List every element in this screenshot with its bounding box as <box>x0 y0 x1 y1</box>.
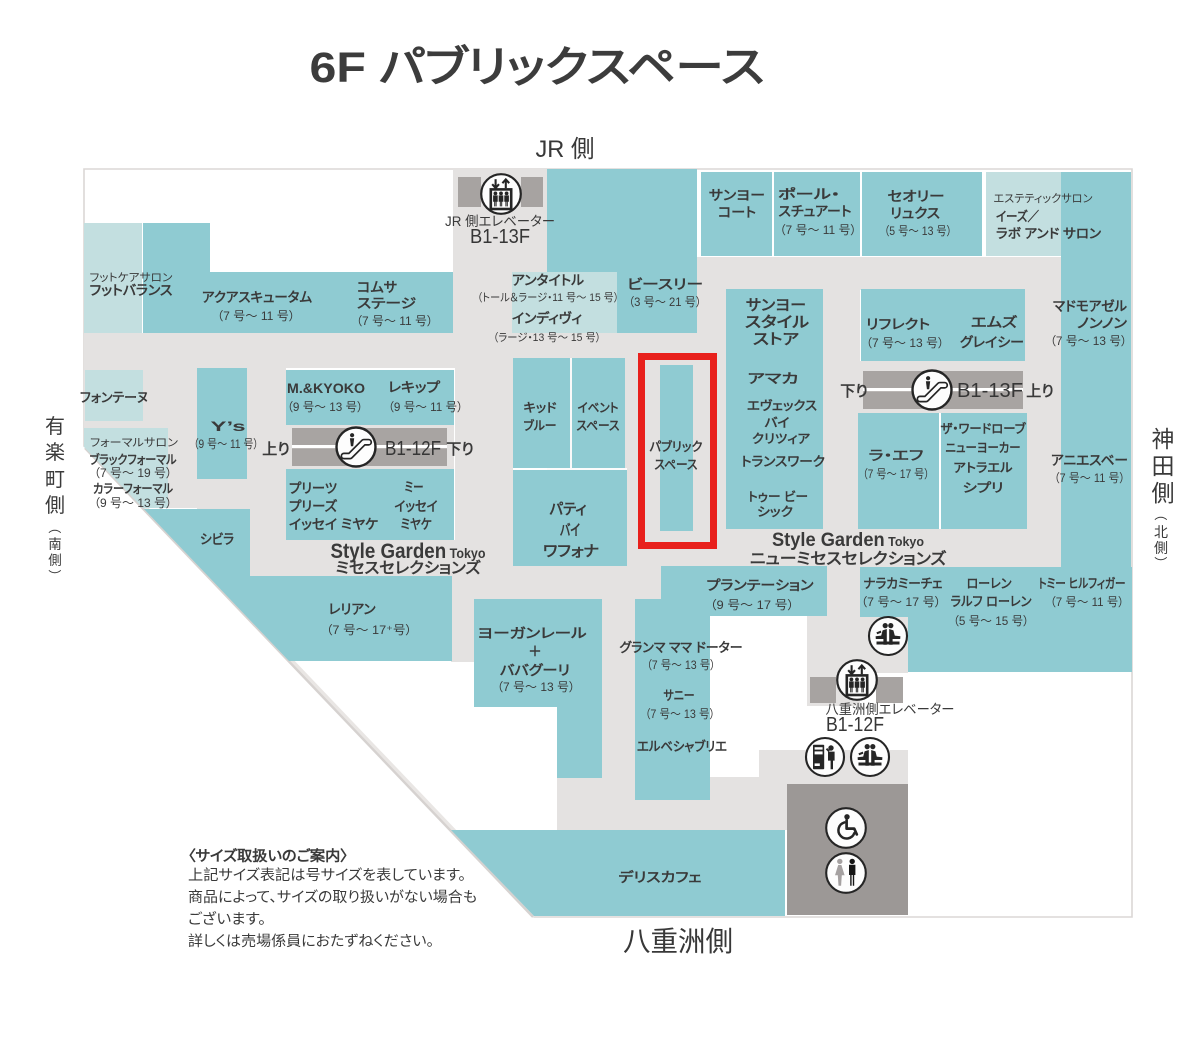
svg-text:マドモアゼル: マドモアゼル <box>1053 298 1128 314</box>
svg-text:商品によって、サイズの取り扱いがない場合も: 商品によって、サイズの取り扱いがない場合も <box>188 889 477 906</box>
svg-text:シビラ: シビラ <box>200 532 234 547</box>
svg-text:ストア: ストア <box>752 331 799 348</box>
svg-text:ラルフ ローレン: ラルフ ローレン <box>951 594 1033 609</box>
svg-text:サニー: サニー <box>663 688 694 703</box>
svg-text:楽: 楽 <box>45 441 65 464</box>
svg-text:側: 側 <box>1154 540 1168 556</box>
svg-text:ミー: ミー <box>405 480 424 495</box>
svg-text:八重洲側: 八重洲側 <box>623 926 733 957</box>
svg-text:神: 神 <box>1152 426 1175 452</box>
svg-text:（9 号〜 17 号）: （9 号〜 17 号） <box>710 598 794 612</box>
svg-text:ブラックフォーマル: ブラックフォーマル <box>90 452 178 467</box>
svg-text:エヴェックス: エヴェックス <box>747 398 817 413</box>
svg-text:イベント: イベント <box>577 401 618 415</box>
svg-text:田: 田 <box>1152 453 1175 479</box>
svg-text:（7 号〜 11 号）: （7 号〜 11 号） <box>1054 471 1125 485</box>
svg-text:ノンノン: ノンノン <box>1077 316 1127 331</box>
svg-text:エルベシャブリエ: エルベシャブリエ <box>637 739 727 754</box>
svg-text:B1-12F: B1-12F <box>385 438 441 460</box>
svg-text:北: 北 <box>1154 524 1168 540</box>
svg-text:ニューヨーカー: ニューヨーカー <box>945 441 1020 455</box>
svg-text:シプリ: シプリ <box>962 480 1003 495</box>
svg-text:クリツィア: クリツィア <box>752 432 810 446</box>
svg-text:ビースリー: ビースリー <box>627 277 703 292</box>
svg-text:（7 号〜 13 号）: （7 号〜 13 号） <box>497 680 575 694</box>
svg-text:アトラエル: アトラエル <box>954 461 1014 475</box>
svg-text:エムズ: エムズ <box>971 314 1019 330</box>
svg-text:グランマ ママ ドーター: グランマ ママ ドーター <box>619 640 742 655</box>
svg-text:ラボ アンド サロン: ラボ アンド サロン <box>996 226 1102 241</box>
svg-text:ブルー: ブルー <box>524 418 557 433</box>
svg-text:インディヴィ: インディヴィ <box>511 310 582 326</box>
svg-text:ステージ: ステージ <box>356 296 417 311</box>
svg-text:側: 側 <box>48 553 62 568</box>
svg-text:上り: 上り <box>1026 383 1053 400</box>
svg-text:（7 号〜 13 号）: （7 号〜 13 号） <box>1050 334 1127 348</box>
svg-text:レキップ: レキップ <box>388 380 441 395</box>
svg-text:フットバランス: フットバランス <box>89 283 172 298</box>
svg-text:（: （ <box>1153 514 1168 521</box>
svg-text:（9 号〜 13 号）: （9 号〜 13 号） <box>287 400 363 414</box>
svg-text:（7 号〜 11 号）: （7 号〜 11 号） <box>780 223 857 237</box>
svg-text:フォーマルサロン: フォーマルサロン <box>90 436 179 449</box>
svg-text:アマカ: アマカ <box>748 371 799 386</box>
svg-text:（7 号〜 11 号）: （7 号〜 11 号） <box>217 309 295 323</box>
svg-text:プリーツ: プリーツ <box>289 481 337 496</box>
svg-text:ローレン: ローレン <box>967 576 1013 591</box>
svg-text:B1-13F: B1-13F <box>470 226 530 248</box>
svg-text:（7 号〜 17 号）: （7 号〜 17 号） <box>861 595 941 609</box>
svg-text:（3 号〜 21 号）: （3 号〜 21 号） <box>629 295 702 309</box>
svg-text:トランスワーク: トランスワーク <box>741 454 825 469</box>
svg-text:ラ・エフ: ラ・エフ <box>869 448 924 463</box>
svg-text:レリアン: レリアン <box>329 602 376 617</box>
svg-text:スペース: スペース <box>576 419 620 433</box>
svg-text:（トール＆ラージ・11 号〜 15 号）: （トール＆ラージ・11 号〜 15 号） <box>477 291 619 304</box>
svg-text:トゥー ビー: トゥー ビー <box>748 489 808 504</box>
svg-text:コート: コート <box>718 205 756 220</box>
svg-text:リフレクト: リフレクト <box>866 317 930 332</box>
svg-text:6F パブリックスペース: 6F パブリックスペース <box>310 43 765 92</box>
svg-text:詳しくは売場係員におたずねください。: 詳しくは売場係員におたずねください。 <box>188 933 434 950</box>
svg-text:ザ・ワードローブ: ザ・ワードローブ <box>940 421 1026 436</box>
svg-text:ヨーガンレール: ヨーガンレール <box>478 626 588 641</box>
svg-text:ミセスセレクションズ: ミセスセレクションズ <box>335 558 481 577</box>
svg-text:〈サイズ取扱いのご案内〉: 〈サイズ取扱いのご案内〉 <box>188 847 348 865</box>
svg-text:イッセイ ミヤケ: イッセイ ミヤケ <box>288 517 378 532</box>
svg-text:ポール・: ポール・ <box>778 186 840 202</box>
svg-text:パブリック: パブリック <box>649 439 703 454</box>
svg-text:Y’s: Y’s <box>211 419 246 434</box>
svg-text:イッセイ: イッセイ <box>394 499 438 514</box>
svg-text:M.&KYOKO: M.&KYOKO <box>287 381 365 396</box>
svg-text:）: ） <box>1153 556 1168 563</box>
svg-text:上記サイズ表記は号サイズを表しています。: 上記サイズ表記は号サイズを表しています。 <box>188 867 466 884</box>
svg-text:セオリー: セオリー <box>887 189 944 204</box>
svg-text:キッド: キッド <box>524 401 558 415</box>
svg-text:（7 号〜 11 号）: （7 号〜 11 号） <box>1050 595 1124 609</box>
svg-text:JR 側: JR 側 <box>536 136 595 163</box>
svg-text:ミヤケ: ミヤケ <box>401 517 432 532</box>
svg-text:＋: ＋ <box>528 644 542 659</box>
svg-text:プリーズ: プリーズ <box>289 498 338 514</box>
svg-text:下り: 下り <box>446 441 473 458</box>
svg-text:（7 号〜 13 号）: （7 号〜 13 号） <box>647 658 716 672</box>
svg-text:ワフォナ: ワフォナ <box>543 543 599 560</box>
svg-text:ババグーリ: ババグーリ <box>500 662 570 678</box>
svg-text:コムサ: コムサ <box>357 280 397 295</box>
svg-text:町: 町 <box>45 469 65 491</box>
svg-text:スペース: スペース <box>654 458 698 472</box>
svg-text:ナラカミーチェ: ナラカミーチェ <box>863 576 942 591</box>
svg-text:スタイル: スタイル <box>744 314 809 331</box>
svg-text:B1-12F: B1-12F <box>826 714 884 736</box>
svg-text:イーズ／: イーズ／ <box>996 209 1039 224</box>
svg-text:バイ: バイ <box>764 416 790 430</box>
svg-text:（: （ <box>47 527 62 534</box>
svg-text:側: 側 <box>45 494 65 517</box>
svg-text:（7 号〜 17⁺号）: （7 号〜 17⁺号） <box>326 623 412 637</box>
svg-text:Style Garden Tokyo: Style Garden Tokyo <box>772 530 924 551</box>
svg-text:有: 有 <box>45 415 65 438</box>
svg-text:グレイシー: グレイシー <box>960 334 1024 350</box>
svg-text:南: 南 <box>48 537 62 552</box>
svg-text:ニューミセスセレクションズ: ニューミセスセレクションズ <box>750 549 947 568</box>
svg-text:下り: 下り <box>840 383 867 400</box>
svg-text:プランテーション: プランテーション <box>707 578 814 593</box>
svg-text:上り: 上り <box>262 441 289 458</box>
svg-text:（9 号〜 11 号）: （9 号〜 11 号） <box>388 400 463 414</box>
svg-text:トミー ヒルフィガー: トミー ヒルフィガー <box>1039 576 1126 591</box>
svg-text:サンヨー: サンヨー <box>709 188 765 203</box>
svg-text:ございます。: ございます。 <box>188 910 266 928</box>
svg-text:側: 側 <box>1152 480 1175 506</box>
svg-text:サンヨー: サンヨー <box>746 297 806 314</box>
svg-text:アクアスキュータム: アクアスキュータム <box>202 290 312 305</box>
svg-text:シック: シック <box>757 505 794 519</box>
svg-text:アニエスベー: アニエスベー <box>1051 453 1128 468</box>
svg-text:デリスカフェ: デリスカフェ <box>618 869 701 885</box>
svg-text:アンタイトル: アンタイトル <box>512 273 585 288</box>
svg-text:カラーフォーマル: カラーフォーマル <box>93 482 174 496</box>
svg-text:（7 号〜 13 号）: （7 号〜 13 号） <box>645 707 715 721</box>
svg-text:スチュアート: スチュアート <box>778 204 852 219</box>
svg-text:（5 号〜 15 号）: （5 号〜 15 号） <box>953 614 1029 628</box>
svg-text:（9 号〜 11 号）: （9 号〜 11 号） <box>194 437 259 451</box>
svg-text:（7 号〜 13 号）: （7 号〜 13 号） <box>866 336 944 350</box>
svg-text:リュクス: リュクス <box>890 206 940 221</box>
svg-text:フォンテーヌ: フォンテーヌ <box>80 390 148 405</box>
svg-text:（9 号〜 13 号）: （9 号〜 13 号） <box>94 496 172 510</box>
svg-text:）: ） <box>47 569 62 576</box>
svg-text:エステティックサロン: エステティックサロン <box>993 192 1093 205</box>
svg-text:（ラージ・13 号〜 15 号）: （ラージ・13 号〜 15 号） <box>493 331 601 344</box>
svg-text:（7 号〜 17 号）: （7 号〜 17 号） <box>863 467 930 481</box>
svg-text:B1-13F: B1-13F <box>957 380 1023 402</box>
svg-text:パティ: パティ <box>549 501 587 518</box>
svg-text:バイ: バイ <box>560 522 581 539</box>
svg-text:（7 号〜 11 号）: （7 号〜 11 号） <box>356 314 433 328</box>
svg-text:（5 号〜 13 号）: （5 号〜 13 号） <box>884 224 952 238</box>
svg-text:（7 号〜 19 号）: （7 号〜 19 号） <box>94 466 172 480</box>
